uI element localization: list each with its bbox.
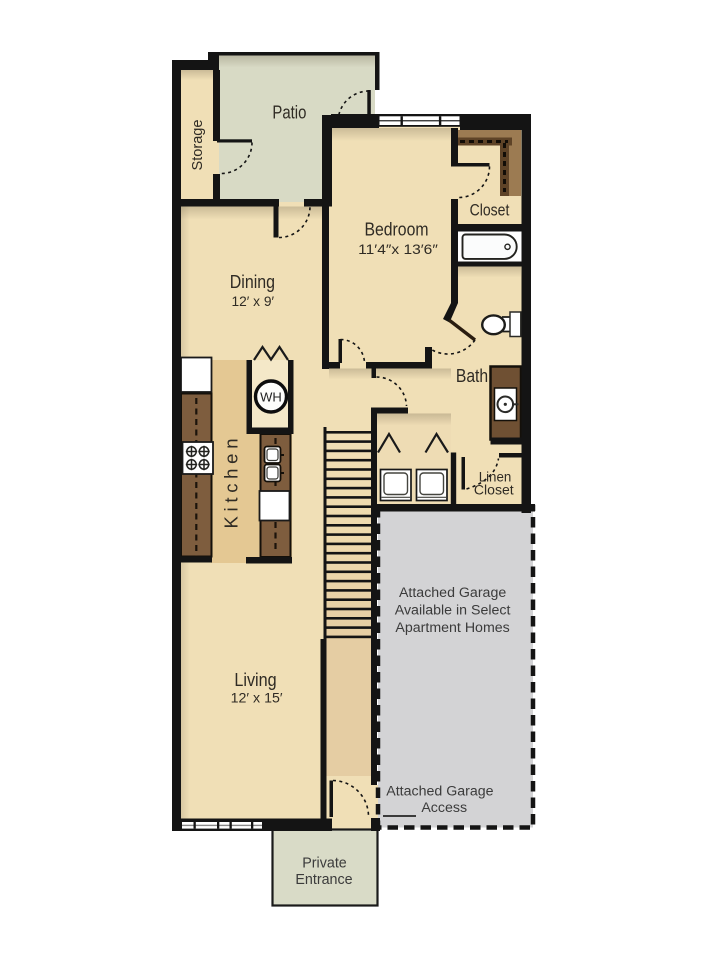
svg-text:12′ x 15′: 12′ x 15′ [231,690,283,705]
svg-text:Entrance: Entrance [295,872,352,888]
svg-text:Attached Garage: Attached Garage [399,585,506,601]
svg-text:Attached Garage: Attached Garage [386,784,493,800]
svg-text:Bath: Bath [456,365,488,386]
svg-text:12′ x 9′: 12′ x 9′ [232,294,275,309]
svg-text:Apartment Homes: Apartment Homes [395,620,509,636]
svg-text:11′4″x 13′6″: 11′4″x 13′6″ [358,242,438,257]
svg-text:Available in Select: Available in Select [395,603,511,619]
svg-text:WH: WH [260,390,282,405]
svg-text:Closet: Closet [470,202,510,220]
svg-text:Closet: Closet [474,483,514,498]
svg-text:Patio: Patio [272,101,306,122]
svg-text:Access: Access [421,800,467,816]
svg-text:Bedroom: Bedroom [365,218,429,239]
svg-text:Storage: Storage [190,120,206,171]
svg-text:Dining: Dining [230,271,275,292]
svg-text:Private: Private [302,856,347,872]
svg-text:Living: Living [234,669,276,690]
